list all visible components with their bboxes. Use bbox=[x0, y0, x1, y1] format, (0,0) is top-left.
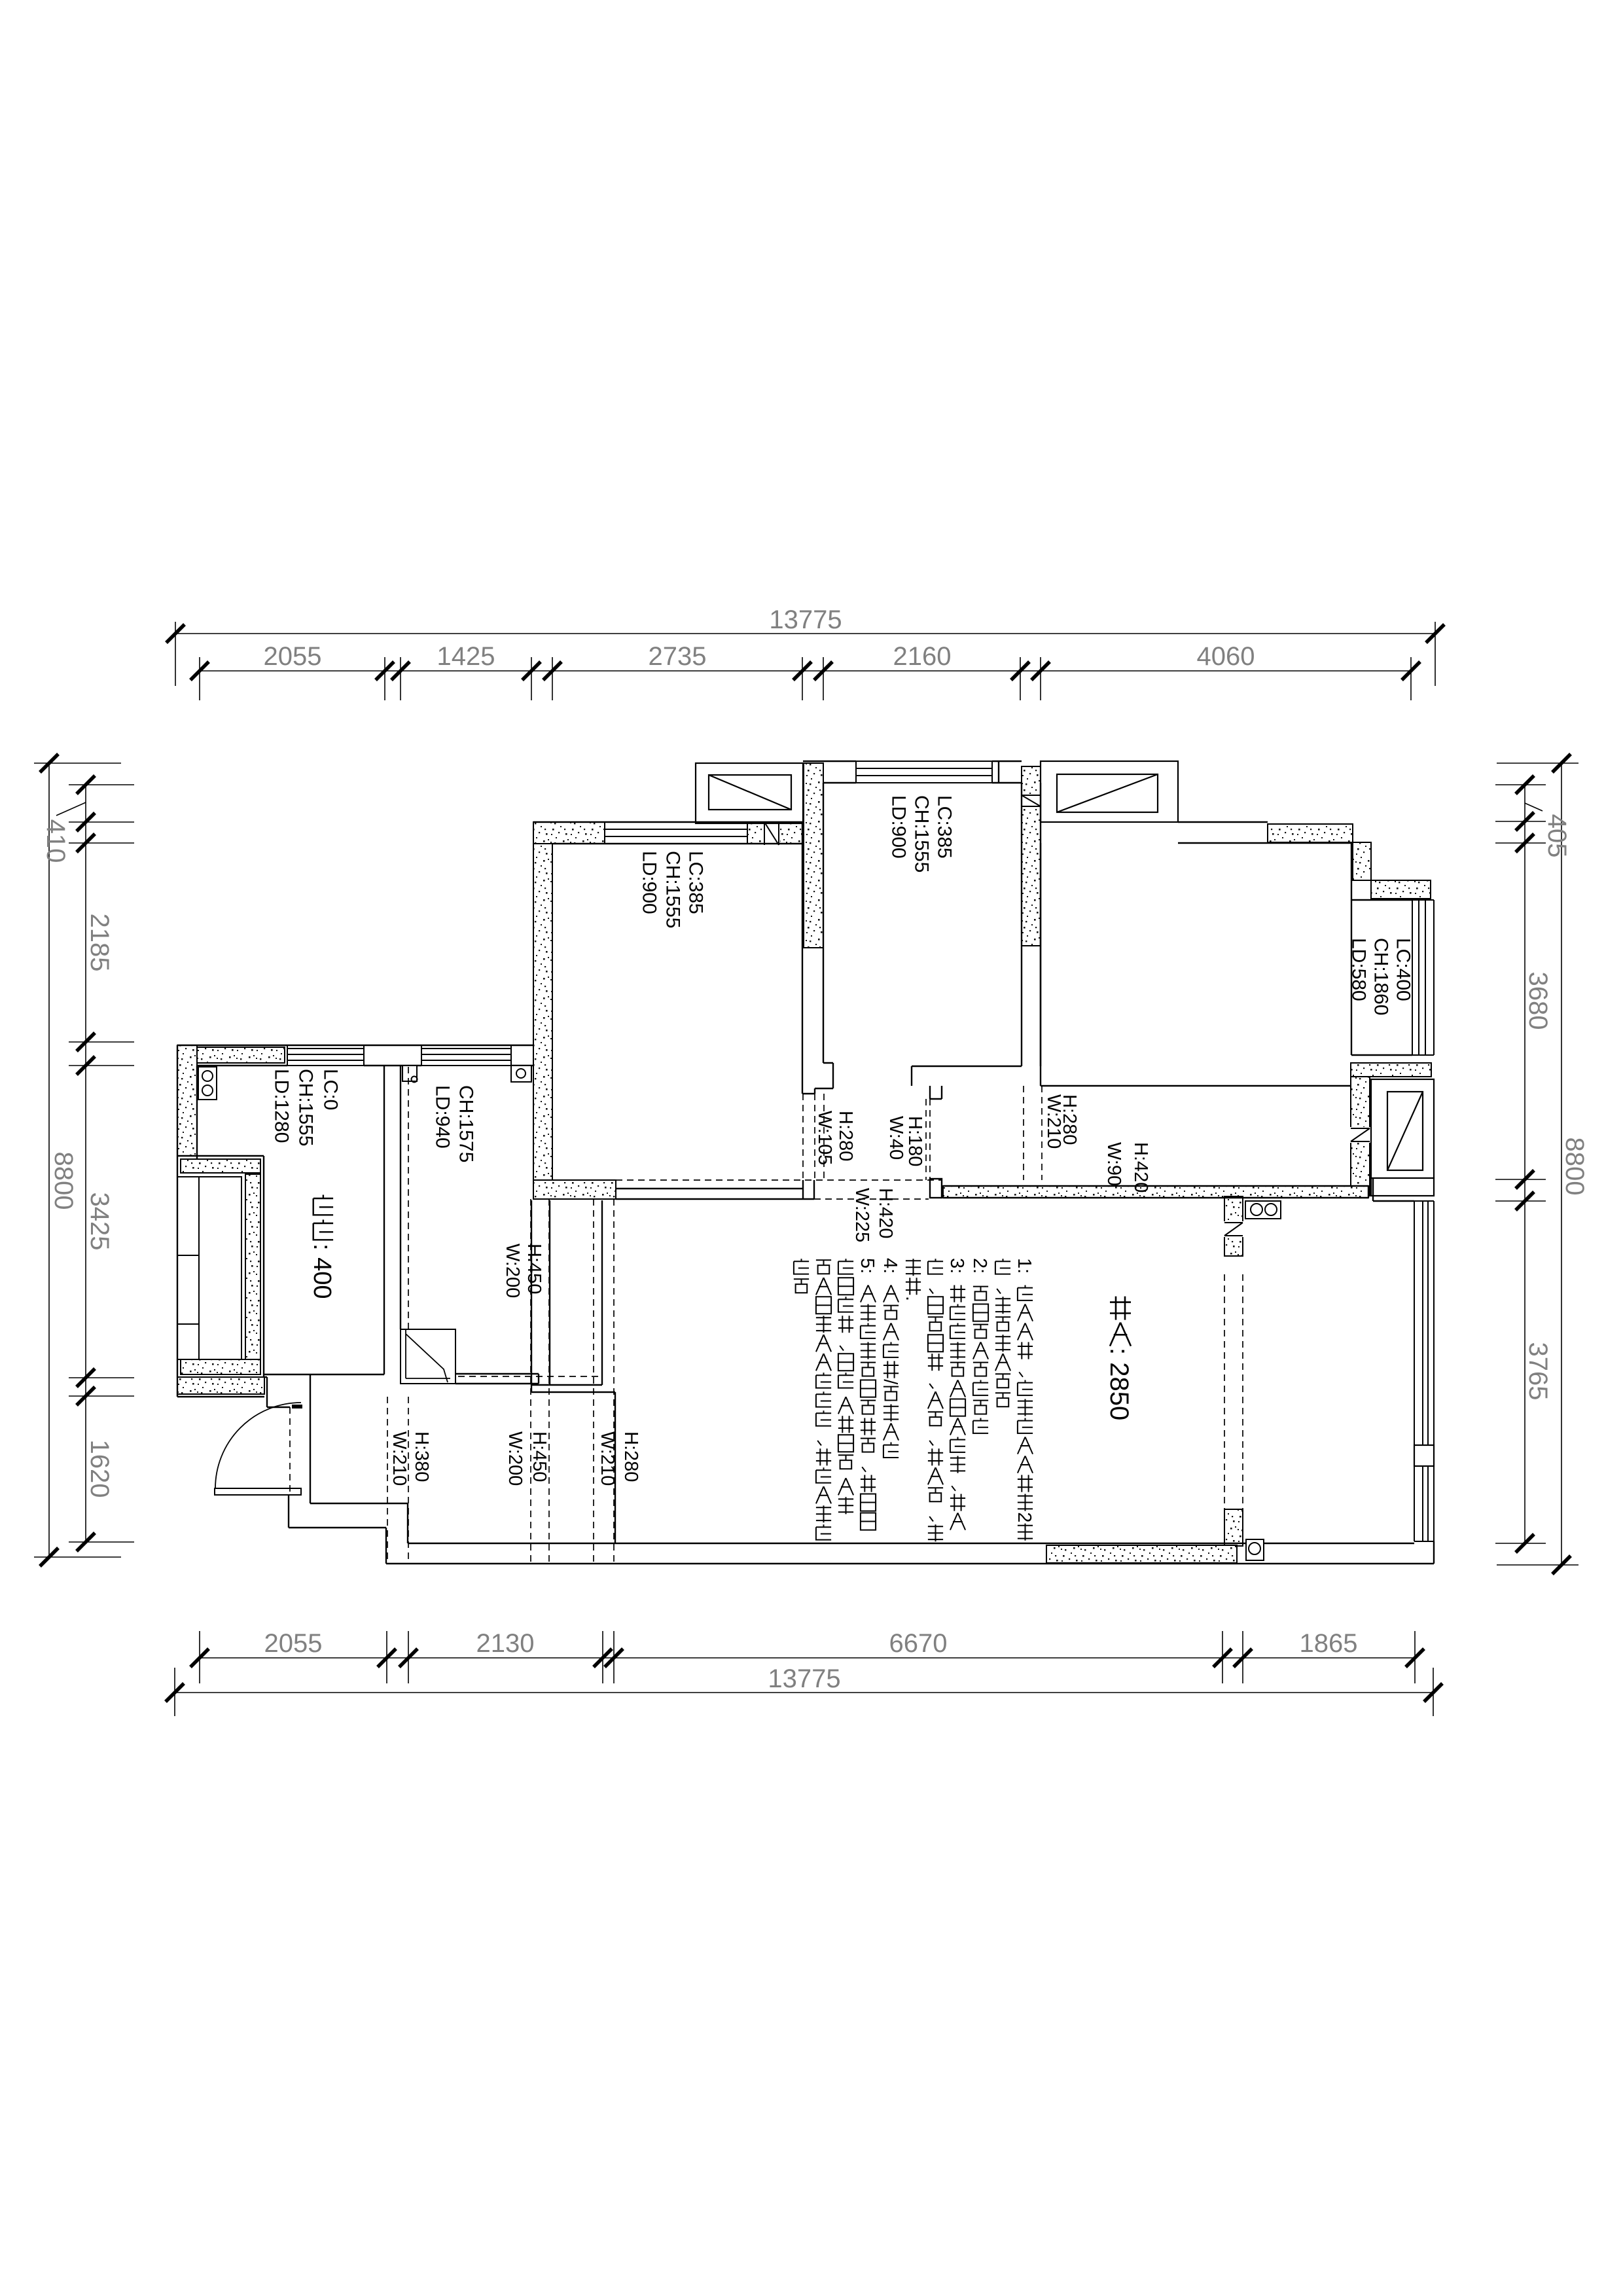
svg-text:CH:1555: CH:1555 bbox=[295, 1069, 317, 1146]
svg-text:CH:1575: CH:1575 bbox=[455, 1085, 477, 1162]
svg-text:H:450: H:450 bbox=[524, 1244, 544, 1294]
svg-text:4060: 4060 bbox=[1197, 642, 1255, 671]
svg-text:H:450: H:450 bbox=[529, 1431, 550, 1482]
svg-text:H:280: H:280 bbox=[620, 1431, 641, 1482]
svg-text:8800: 8800 bbox=[1560, 1138, 1589, 1196]
svg-text:405: 405 bbox=[1543, 814, 1571, 858]
svg-text:5:: 5: bbox=[857, 1258, 878, 1274]
svg-text:CH:1860: CH:1860 bbox=[1370, 938, 1392, 1015]
svg-text:W:210: W:210 bbox=[389, 1431, 410, 1486]
svg-text:LD:900: LD:900 bbox=[888, 795, 910, 859]
svg-text:4:: 4: bbox=[880, 1258, 901, 1274]
svg-text:3765: 3765 bbox=[1524, 1342, 1552, 1401]
svg-text:LD:580: LD:580 bbox=[1348, 938, 1370, 1001]
svg-text:13775: 13775 bbox=[768, 1664, 840, 1693]
svg-text:1425: 1425 bbox=[437, 642, 495, 671]
svg-text:CH:1555: CH:1555 bbox=[911, 795, 933, 872]
svg-text:2: 2 bbox=[1014, 1512, 1035, 1522]
svg-text:H:420: H:420 bbox=[875, 1188, 896, 1238]
svg-text:H:420: H:420 bbox=[1130, 1142, 1151, 1193]
svg-text:2:: 2: bbox=[969, 1258, 990, 1274]
svg-text:2185: 2185 bbox=[85, 914, 114, 972]
svg-text:W:90: W:90 bbox=[1103, 1142, 1124, 1186]
svg-text:LC:385: LC:385 bbox=[685, 851, 707, 914]
svg-text:H:380: H:380 bbox=[411, 1431, 432, 1482]
svg-text:: 2850: : 2850 bbox=[1105, 1348, 1133, 1420]
svg-text:410: 410 bbox=[41, 819, 70, 863]
svg-text:3425: 3425 bbox=[85, 1193, 114, 1251]
svg-text:2160: 2160 bbox=[893, 642, 952, 671]
svg-text:LC:385: LC:385 bbox=[934, 795, 955, 859]
svg-text:H:180: H:180 bbox=[904, 1116, 925, 1166]
svg-text:W:210: W:210 bbox=[597, 1431, 618, 1486]
svg-text:6670: 6670 bbox=[889, 1629, 948, 1658]
svg-text:1865: 1865 bbox=[1300, 1629, 1358, 1658]
svg-text:13775: 13775 bbox=[769, 605, 842, 634]
svg-text:2130: 2130 bbox=[476, 1629, 535, 1658]
svg-text:8800: 8800 bbox=[49, 1152, 78, 1210]
svg-text:1:: 1: bbox=[1014, 1258, 1035, 1274]
svg-text:LD:900: LD:900 bbox=[639, 851, 660, 914]
svg-text:2055: 2055 bbox=[264, 642, 322, 671]
svg-text:W:200: W:200 bbox=[502, 1244, 523, 1298]
svg-text:W:40: W:40 bbox=[885, 1116, 906, 1160]
svg-text:W:210: W:210 bbox=[1043, 1094, 1064, 1149]
svg-text:3680: 3680 bbox=[1524, 972, 1552, 1030]
svg-text:/: / bbox=[880, 1379, 901, 1385]
svg-text:.: . bbox=[902, 1296, 923, 1301]
svg-text:LD:940: LD:940 bbox=[432, 1085, 454, 1149]
svg-text:2055: 2055 bbox=[264, 1629, 323, 1658]
svg-text:W:225: W:225 bbox=[851, 1188, 872, 1242]
svg-text:W:105: W:105 bbox=[814, 1111, 835, 1165]
svg-text:3:: 3: bbox=[946, 1258, 967, 1274]
svg-text:CH:1555: CH:1555 bbox=[662, 851, 684, 928]
svg-text:: 400: : 400 bbox=[308, 1244, 336, 1299]
svg-text:H:280: H:280 bbox=[835, 1111, 856, 1161]
svg-text:LD:1280: LD:1280 bbox=[271, 1069, 293, 1143]
svg-text:W:200: W:200 bbox=[505, 1431, 526, 1486]
svg-text:2735: 2735 bbox=[649, 642, 707, 671]
svg-text:1620: 1620 bbox=[85, 1440, 114, 1498]
svg-text:LC:400: LC:400 bbox=[1393, 938, 1414, 1001]
svg-text:LC:0: LC:0 bbox=[320, 1069, 342, 1110]
